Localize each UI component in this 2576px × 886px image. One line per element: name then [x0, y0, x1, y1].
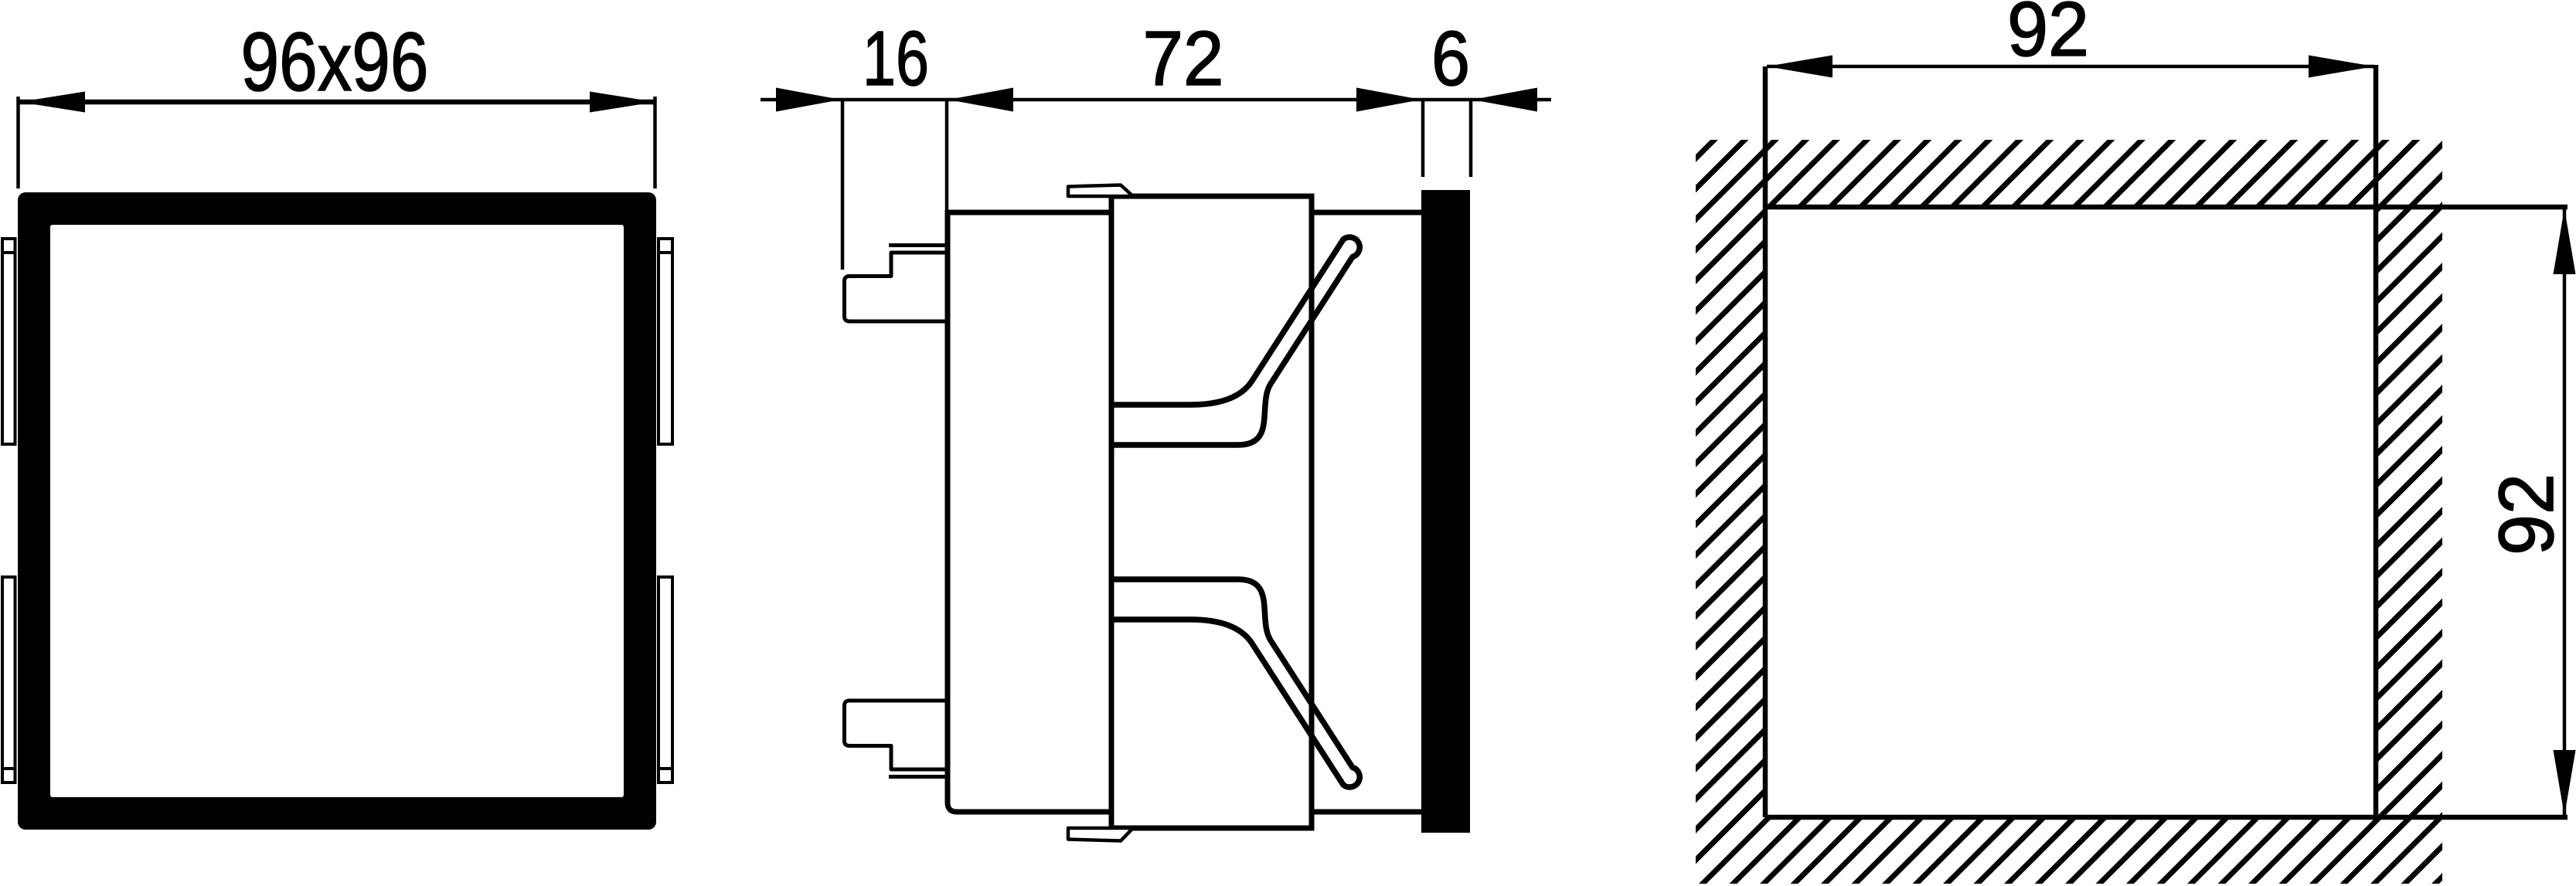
svg-text:92: 92 — [2483, 474, 2570, 555]
svg-text:16: 16 — [863, 15, 929, 102]
svg-text:6: 6 — [1431, 15, 1470, 102]
svg-text:72: 72 — [1143, 15, 1224, 102]
svg-text:96x96: 96x96 — [241, 15, 429, 108]
svg-text:92: 92 — [2007, 0, 2089, 73]
